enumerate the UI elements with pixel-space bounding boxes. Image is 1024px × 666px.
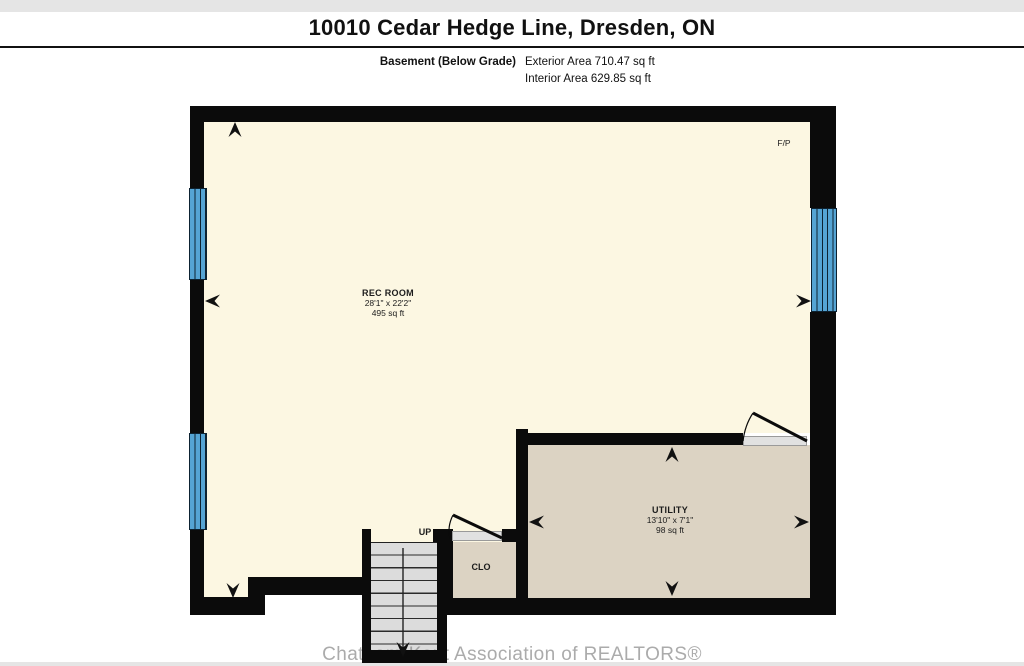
wall-closet-top-right [502, 529, 516, 542]
rec-room-dimensions: 28'1" x 22'2" [362, 298, 414, 308]
wall-top [190, 106, 836, 122]
utility-dimensions: 13'10" x 7'1" [647, 515, 694, 525]
wall-stair-left [362, 529, 371, 663]
rec-room-floor-notch [204, 577, 248, 597]
rec-room-label: REC ROOM 28'1" x 22'2" 495 sq ft [362, 288, 414, 318]
staircase [371, 542, 437, 658]
wall-bottom-right [437, 598, 836, 615]
page-title: 10010 Cedar Hedge Line, Dresden, ON [0, 15, 1024, 41]
floor-plan-page: 10010 Cedar Hedge Line, Dresden, ON Base… [0, 0, 1024, 666]
watermark: Chatham-Kent Association of REALTORS® [0, 644, 1024, 666]
utility-name: UTILITY [647, 505, 694, 515]
window-left-upper [189, 188, 207, 280]
wall-right-lower [810, 312, 836, 615]
rec-room-area: 495 sq ft [362, 308, 414, 318]
rec-room-name: REC ROOM [362, 288, 414, 298]
floor-label: Basement (Below Grade) [0, 56, 516, 68]
wall-bottom-mid [248, 577, 371, 595]
top-edge-band [0, 0, 1024, 12]
exterior-area-text: Exterior Area 710.47 sq ft [525, 56, 655, 68]
closet-label: CLO [472, 562, 491, 572]
wall-stair-bottom [362, 650, 447, 663]
wall-utility-divider [516, 429, 528, 598]
utility-door-threshold [743, 436, 807, 446]
wall-right-upper [810, 106, 836, 208]
fireplace-label: F/P [777, 138, 790, 148]
interior-area-text: Interior Area 629.85 sq ft [525, 73, 651, 85]
stairs-up-label: UP [419, 527, 432, 537]
wall-closet-top-left [433, 529, 452, 542]
wall-utility-top [523, 433, 743, 445]
wall-left-middle [190, 280, 204, 433]
utility-area: 98 sq ft [647, 525, 694, 535]
utility-label: UTILITY 13'10" x 7'1" 98 sq ft [647, 505, 694, 535]
window-right [811, 208, 837, 312]
wall-left-upper [190, 106, 204, 188]
window-left-lower [189, 433, 207, 530]
rec-room-floor [204, 122, 810, 433]
closet-door-threshold [452, 531, 502, 541]
wall-bottom-notch [190, 597, 265, 615]
title-divider-rule [0, 46, 1024, 48]
